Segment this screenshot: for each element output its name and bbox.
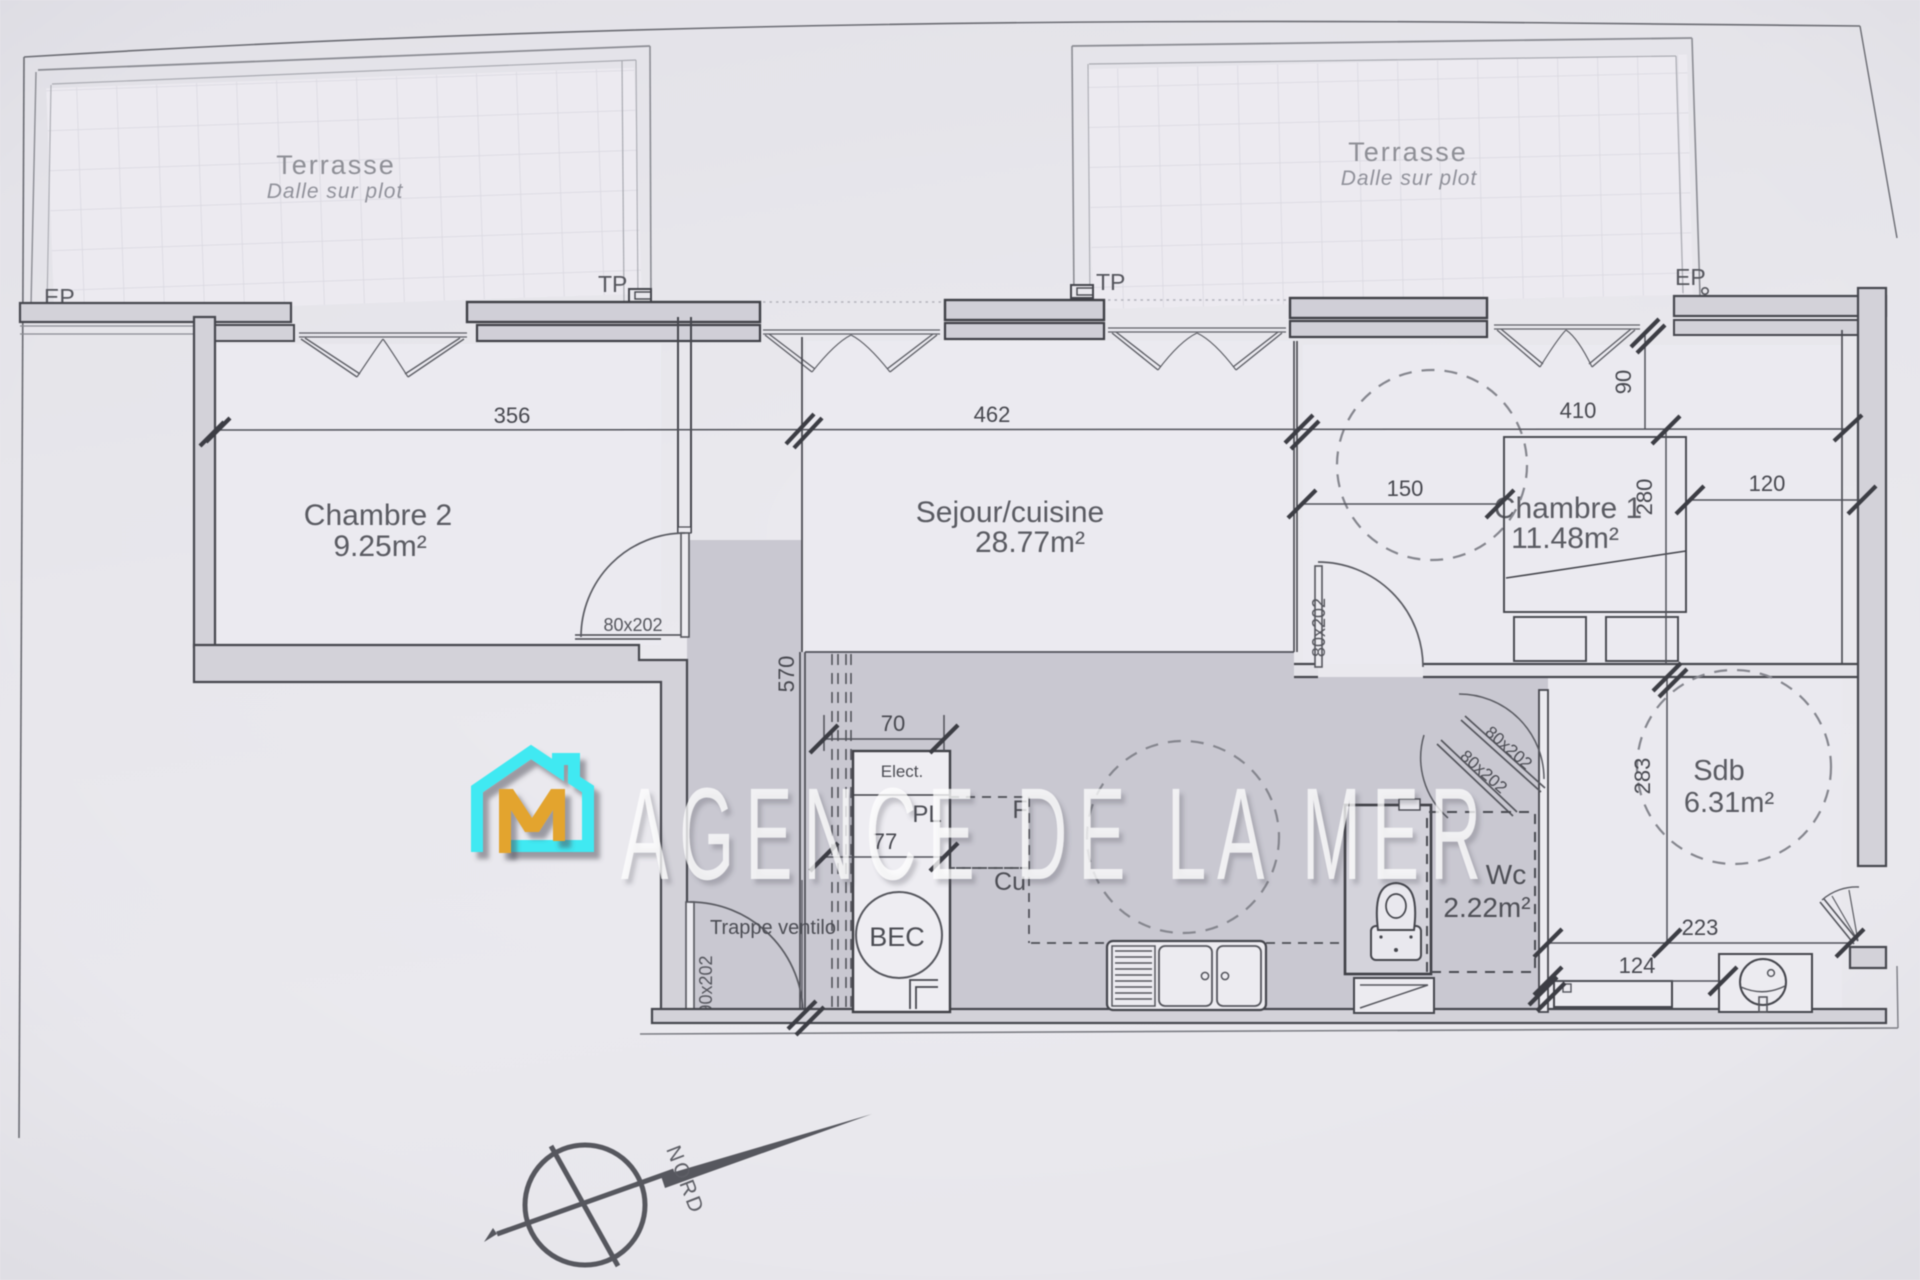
- svg-text:TP: TP: [598, 271, 627, 297]
- svg-text:283: 283: [1630, 758, 1655, 795]
- svg-text:80x202: 80x202: [603, 615, 662, 635]
- svg-text:TP: TP: [1096, 269, 1125, 295]
- svg-text:11.48m²: 11.48m²: [1511, 522, 1619, 555]
- svg-text:Trappe ventilo: Trappe ventilo: [710, 917, 836, 939]
- svg-text:Terrasse: Terrasse: [1348, 137, 1468, 167]
- svg-text:AGENCE DE LA MER: AGENCE DE LA MER: [621, 760, 1492, 907]
- svg-text:90x202: 90x202: [696, 955, 716, 1014]
- svg-text:Dalle sur plot: Dalle sur plot: [1341, 167, 1478, 190]
- svg-text:90: 90: [1611, 370, 1636, 394]
- svg-text:410: 410: [1560, 398, 1597, 423]
- svg-text:462: 462: [974, 402, 1011, 427]
- svg-text:BEC: BEC: [869, 922, 925, 952]
- svg-text:Chambre 2: Chambre 2: [304, 499, 452, 532]
- svg-text:Sdb: Sdb: [1693, 755, 1745, 787]
- svg-text:70: 70: [881, 711, 905, 736]
- svg-text:Dalle sur plot: Dalle sur plot: [267, 180, 404, 203]
- svg-text:9.25m²: 9.25m²: [333, 530, 426, 563]
- svg-text:356: 356: [494, 403, 531, 428]
- svg-text:150: 150: [1387, 476, 1424, 501]
- svg-text:570: 570: [774, 656, 799, 693]
- svg-text:Chambre 1: Chambre 1: [1494, 492, 1642, 525]
- svg-text:120: 120: [1749, 471, 1786, 496]
- svg-text:EP: EP: [1675, 264, 1706, 290]
- svg-text:Sejour/cuisine: Sejour/cuisine: [916, 496, 1104, 529]
- svg-text:223: 223: [1682, 915, 1719, 940]
- svg-text:280: 280: [1632, 479, 1657, 516]
- svg-text:80x202: 80x202: [1309, 598, 1329, 657]
- svg-text:6.31m²: 6.31m²: [1684, 787, 1775, 819]
- svg-text:124: 124: [1619, 953, 1656, 978]
- svg-text:28.77m²: 28.77m²: [975, 526, 1085, 559]
- svg-text:Terrasse: Terrasse: [276, 150, 396, 180]
